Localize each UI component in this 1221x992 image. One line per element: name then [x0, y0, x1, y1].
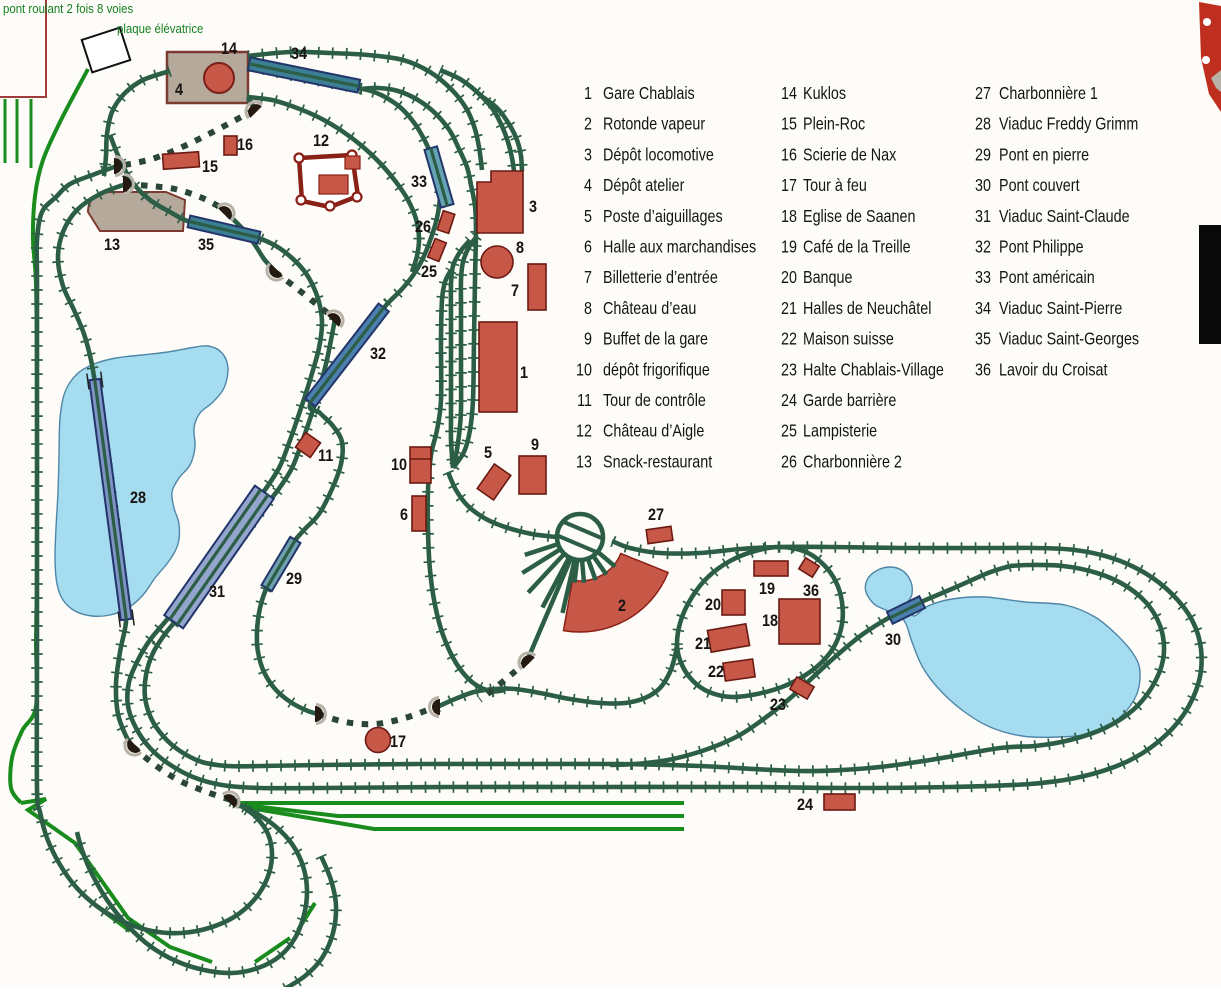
svg-text:6: 6 [584, 238, 592, 257]
svg-text:2: 2 [618, 597, 626, 615]
svg-text:33: 33 [975, 269, 991, 288]
svg-text:Banque: Banque [803, 269, 853, 288]
svg-text:7: 7 [511, 282, 519, 300]
svg-text:26: 26 [781, 453, 797, 472]
svg-text:3: 3 [529, 198, 537, 216]
svg-text:16: 16 [781, 146, 797, 165]
svg-text:33: 33 [411, 173, 427, 191]
svg-text:Kuklos: Kuklos [803, 85, 846, 104]
svg-text:Halles de Neuchâtel: Halles de Neuchâtel [803, 300, 931, 319]
svg-text:Garde barrière: Garde barrière [803, 392, 896, 411]
svg-text:Lavoir du Croisat: Lavoir du Croisat [999, 361, 1108, 380]
svg-text:26: 26 [415, 218, 431, 236]
svg-text:Pont couvert: Pont couvert [999, 177, 1080, 196]
svg-text:21: 21 [695, 635, 711, 653]
svg-text:7: 7 [584, 269, 592, 288]
svg-text:30: 30 [885, 631, 901, 649]
svg-text:3: 3 [584, 146, 592, 165]
svg-text:21: 21 [781, 300, 797, 319]
svg-text:36: 36 [803, 582, 819, 600]
svg-text:30: 30 [975, 177, 991, 196]
svg-text:dépôt frigorifique: dépôt frigorifique [603, 361, 710, 380]
svg-text:31: 31 [209, 583, 225, 601]
svg-text:28: 28 [975, 115, 991, 134]
svg-text:20: 20 [705, 596, 721, 614]
svg-text:34: 34 [975, 300, 991, 319]
svg-text:24: 24 [797, 796, 813, 814]
svg-text:20: 20 [781, 269, 797, 288]
svg-text:Rotonde vapeur: Rotonde vapeur [603, 115, 706, 134]
svg-text:Dépôt atelier: Dépôt atelier [603, 177, 685, 196]
svg-text:Tour de contrôle: Tour de contrôle [603, 392, 706, 411]
svg-text:28: 28 [130, 489, 146, 507]
svg-text:18: 18 [762, 612, 778, 630]
svg-text:Château d’eau: Château d’eau [603, 300, 696, 319]
svg-text:25: 25 [421, 263, 437, 281]
svg-text:23: 23 [781, 361, 797, 380]
svg-text:31: 31 [975, 208, 991, 227]
svg-text:Poste d’aiguillages: Poste d’aiguillages [603, 208, 723, 227]
svg-text:19: 19 [759, 580, 775, 598]
svg-text:29: 29 [286, 570, 302, 588]
svg-text:Château d’Aigle: Château d’Aigle [603, 422, 704, 441]
svg-text:14: 14 [221, 40, 237, 58]
svg-text:32: 32 [370, 345, 386, 363]
svg-text:17: 17 [390, 733, 406, 751]
svg-text:Charbonnière 1: Charbonnière 1 [999, 85, 1098, 104]
svg-text:5: 5 [484, 444, 492, 462]
svg-text:Tour à feu: Tour à feu [803, 177, 867, 196]
svg-text:27: 27 [648, 506, 664, 524]
svg-text:19: 19 [781, 238, 797, 257]
svg-text:17: 17 [781, 177, 797, 196]
svg-text:Plein-Roc: Plein-Roc [803, 115, 865, 134]
svg-text:Gare Chablais: Gare Chablais [603, 85, 695, 104]
svg-text:15: 15 [781, 115, 797, 134]
svg-text:Eglise de Saanen: Eglise de Saanen [803, 208, 915, 227]
svg-text:16: 16 [237, 136, 253, 154]
svg-text:11: 11 [318, 447, 333, 465]
svg-text:8: 8 [516, 239, 524, 257]
svg-text:10: 10 [576, 361, 592, 380]
svg-text:Halte Chablais-Village: Halte Chablais-Village [803, 361, 944, 380]
svg-text:1: 1 [520, 364, 528, 382]
svg-text:23: 23 [770, 696, 786, 714]
svg-text:Snack-restaurant: Snack-restaurant [603, 453, 713, 472]
svg-text:34: 34 [291, 45, 307, 63]
svg-text:Viaduc Saint-Georges: Viaduc Saint-Georges [999, 330, 1139, 349]
svg-text:36: 36 [975, 361, 991, 380]
svg-text:12: 12 [576, 422, 592, 441]
svg-text:13: 13 [576, 453, 592, 472]
svg-text:Charbonnière 2: Charbonnière 2 [803, 453, 902, 472]
svg-text:Viaduc Saint-Pierre: Viaduc Saint-Pierre [999, 300, 1122, 319]
svg-text:plaque élévatrice: plaque élévatrice [117, 21, 204, 36]
svg-text:Pont Philippe: Pont Philippe [999, 238, 1084, 257]
svg-text:Viaduc Freddy Grimm: Viaduc Freddy Grimm [999, 115, 1138, 134]
svg-text:25: 25 [781, 422, 797, 441]
svg-text:Halle aux marchandises: Halle aux marchandises [603, 238, 756, 257]
svg-text:Scierie de Nax: Scierie de Nax [803, 146, 896, 165]
svg-text:5: 5 [584, 208, 592, 227]
svg-text:13: 13 [104, 236, 120, 254]
svg-text:Viaduc Saint-Claude: Viaduc Saint-Claude [999, 208, 1130, 227]
svg-text:35: 35 [975, 330, 991, 349]
svg-text:9: 9 [531, 436, 539, 454]
svg-text:32: 32 [975, 238, 991, 257]
svg-text:Buffet de la gare: Buffet de la gare [603, 330, 708, 349]
svg-text:4: 4 [584, 177, 592, 196]
svg-text:Dépôt locomotive: Dépôt locomotive [603, 146, 714, 165]
svg-text:Pont américain: Pont américain [999, 269, 1095, 288]
svg-text:24: 24 [781, 392, 797, 411]
svg-text:11: 11 [577, 392, 592, 411]
svg-text:8: 8 [584, 300, 592, 319]
svg-text:27: 27 [975, 85, 991, 104]
svg-text:Lampisterie: Lampisterie [803, 422, 877, 441]
svg-text:Billetterie d’entrée: Billetterie d’entrée [603, 269, 718, 288]
svg-text:18: 18 [781, 208, 797, 227]
svg-text:29: 29 [975, 146, 991, 165]
svg-text:1: 1 [584, 85, 592, 104]
svg-text:22: 22 [708, 663, 724, 681]
svg-text:4: 4 [175, 81, 183, 99]
svg-text:9: 9 [584, 330, 592, 349]
svg-text:Maison suisse: Maison suisse [803, 330, 894, 349]
svg-text:6: 6 [400, 506, 408, 524]
svg-text:2: 2 [584, 115, 592, 134]
svg-text:pont roulant 2 fois 8 voies: pont roulant 2 fois 8 voies [3, 1, 133, 16]
svg-text:22: 22 [781, 330, 797, 349]
svg-text:Café de la Treille: Café de la Treille [803, 238, 911, 257]
svg-text:35: 35 [198, 236, 214, 254]
svg-text:10: 10 [391, 456, 407, 474]
svg-text:14: 14 [781, 85, 797, 104]
svg-text:12: 12 [313, 132, 329, 150]
svg-text:Pont en pierre: Pont en pierre [999, 146, 1089, 165]
svg-text:15: 15 [202, 158, 218, 176]
